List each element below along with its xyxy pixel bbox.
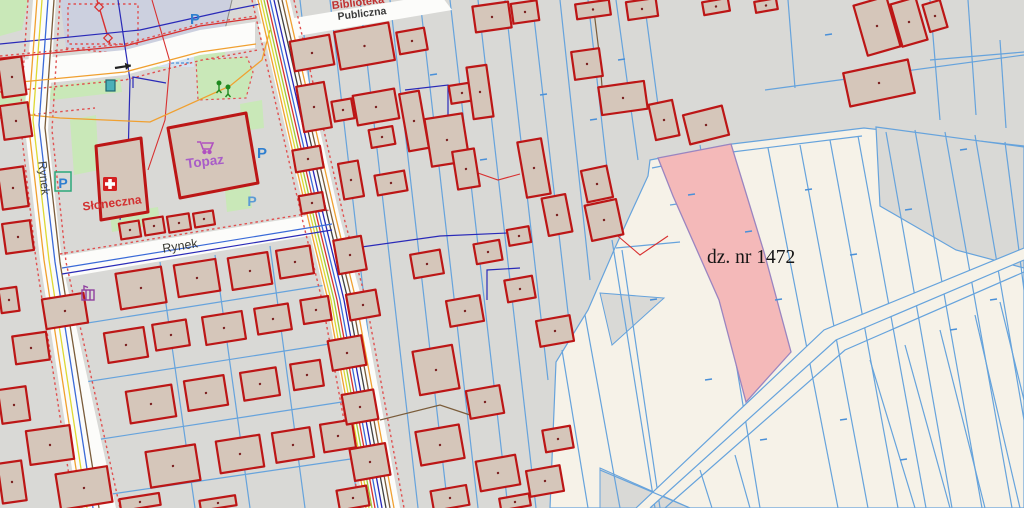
building [452,149,480,190]
building [228,252,273,290]
building [331,98,354,121]
parking-icon: P [257,145,267,162]
map-viewport[interactable]: P P P P [0,0,1024,508]
building [292,146,323,173]
building [202,311,246,345]
parcel-number-label: dz. nr 1472 [707,247,795,268]
building [240,367,280,400]
building [26,425,74,465]
building [290,360,324,390]
svg-text:P: P [190,11,200,28]
building [145,444,200,487]
building [575,0,611,19]
building [349,443,390,481]
building [0,287,20,313]
building [334,23,395,70]
building [152,320,190,351]
building [336,486,369,508]
building [507,226,531,246]
building [369,126,396,148]
building [115,267,166,310]
building [300,296,331,324]
building [536,315,574,347]
building [396,28,427,55]
parking-icon: P [247,193,256,209]
building [415,424,464,465]
building [353,89,400,126]
building [119,221,141,240]
building [0,166,29,209]
building [0,102,32,140]
building [542,426,573,453]
building [410,250,444,279]
building [446,295,484,327]
building [42,293,88,329]
park-area [196,57,253,100]
building [272,427,314,463]
building [585,199,624,241]
building [626,0,658,20]
building [328,335,367,370]
building [104,327,148,363]
building [511,0,540,23]
building [571,48,603,80]
building [473,240,502,264]
building [184,375,228,411]
svg-text:P: P [247,193,256,209]
building [476,455,521,491]
building [276,246,314,279]
building [2,220,34,254]
building [216,435,264,473]
svg-text:P: P [58,175,67,191]
building [174,259,220,297]
utility-box-icon [106,80,115,91]
building [342,389,379,424]
building [504,276,535,303]
building [412,345,459,395]
building [290,35,335,71]
building [254,304,292,335]
building [12,332,50,364]
building [299,192,326,214]
building [374,171,407,196]
building [333,236,366,274]
pharmacy-cross-icon [103,177,117,191]
building [598,81,647,115]
building [167,213,191,232]
building [0,386,30,424]
svg-text:P: P [257,145,267,162]
building [143,217,165,236]
parking-icon: P [190,11,200,28]
building [526,465,564,497]
building [346,290,380,321]
building [0,57,27,98]
building [472,2,511,33]
building [56,466,113,508]
building [126,385,176,424]
building [0,461,27,504]
building [581,166,613,203]
map-image[interactable]: P P P P [0,0,1024,508]
building [466,385,504,418]
building [193,211,215,228]
